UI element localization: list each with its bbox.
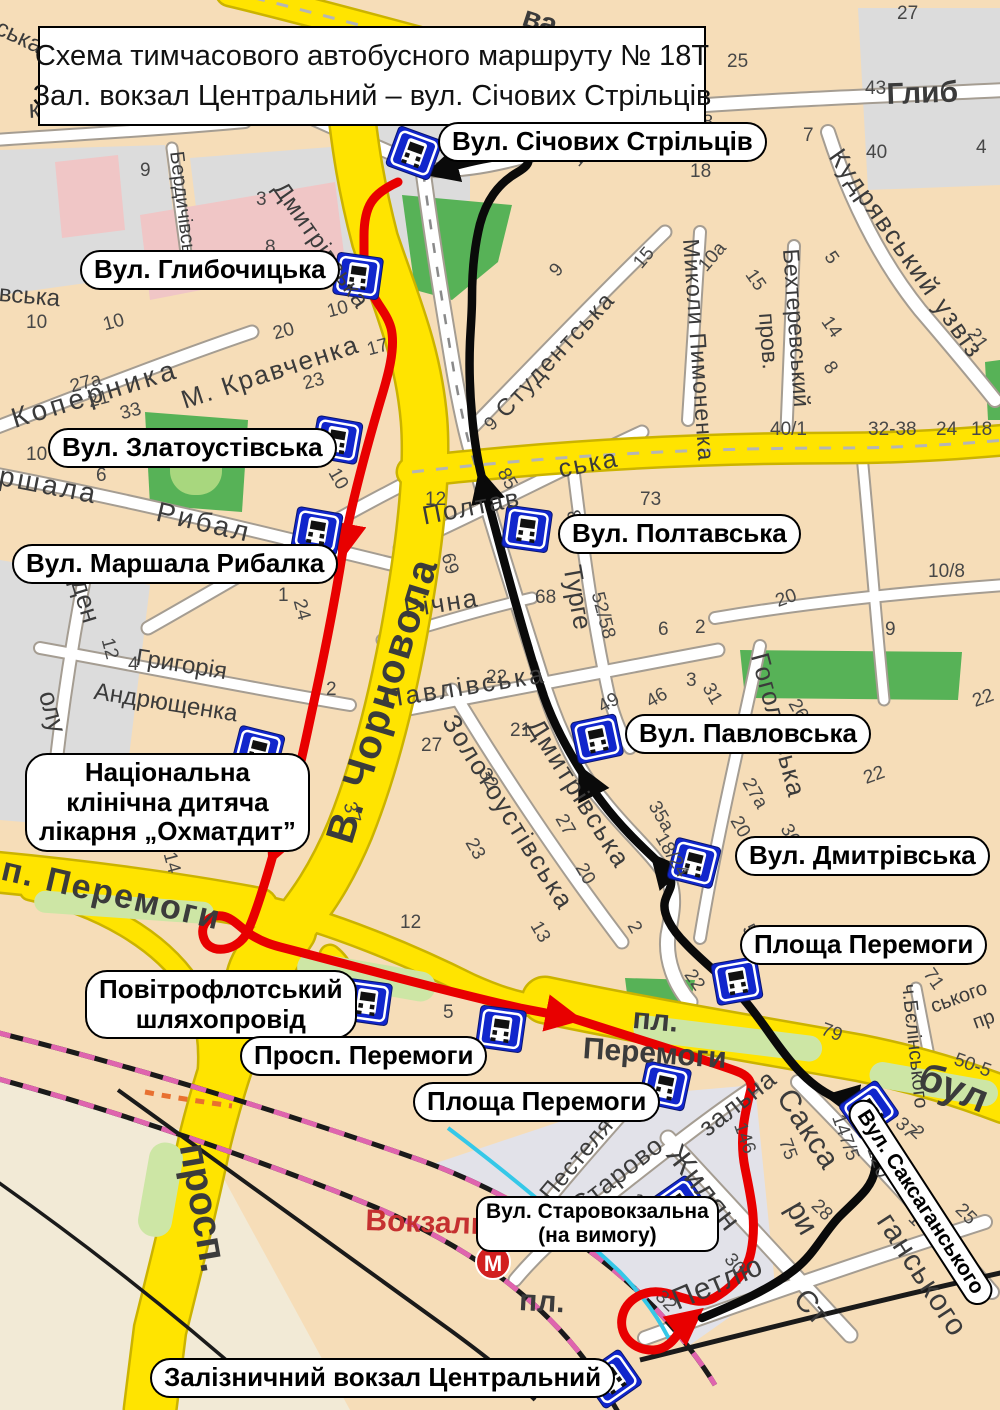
base-map: М (0, 0, 1000, 1410)
bus-stop-icon-poltavska (501, 505, 552, 553)
metro-icon: М (476, 1245, 510, 1279)
bus-stop-icon-pavlovska (570, 714, 624, 765)
route-map-canvas: М васькак'янівська пл.БердичівськавськаГ… (0, 0, 1000, 1410)
bus-stop-icon-ploshcha-peremohy-outbound (638, 1061, 692, 1112)
bus-stop-icon-hlybochytska (332, 252, 383, 300)
bus-stop-icon-prosp-peremohy (475, 1005, 526, 1053)
bus-stop-icon-povitroflotskyi-shliakhoprovid (341, 978, 392, 1026)
bus-stop-icon-zlatoustivska (311, 415, 364, 464)
metro-letter: М (484, 1251, 502, 1276)
bus-stop-icon-marshala-rybalky (291, 506, 344, 555)
bus-stop-icon-ploshcha-peremohy-inbound (711, 956, 764, 1005)
